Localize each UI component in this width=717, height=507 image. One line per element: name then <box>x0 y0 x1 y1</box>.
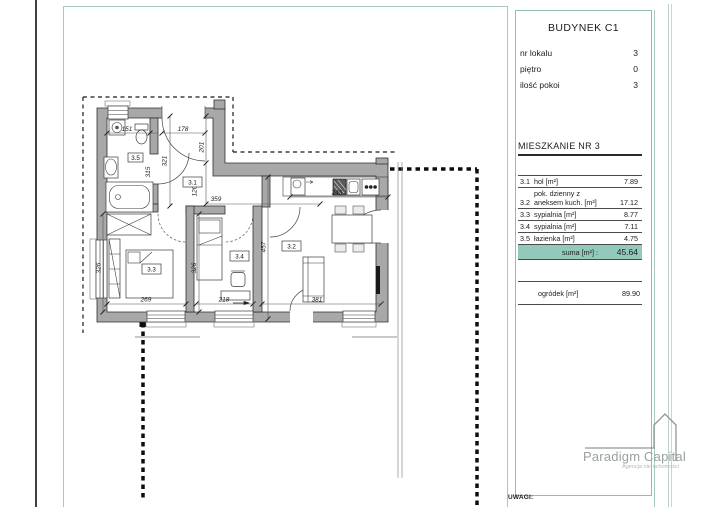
garden-door-opening <box>290 311 313 324</box>
table-row: 3.5 łazienka [m²] 4.75 <box>518 233 642 245</box>
room-label-3-1: 3.1 <box>188 180 197 187</box>
garden-label: ogródek [m²] <box>518 289 604 298</box>
window-sill <box>214 322 254 327</box>
room-name: łazienka [m²] <box>534 234 606 243</box>
window-sill <box>342 322 376 327</box>
unit-info: nr lokalu 3 piętro 0 ilość pokoi 3 <box>520 45 638 93</box>
room-label-3-4: 3.4 <box>235 254 244 261</box>
sofa-icon <box>303 257 324 302</box>
window-bath <box>108 106 128 119</box>
info-label: ilość pokoi <box>520 77 560 93</box>
window-bottom-3 <box>343 311 375 322</box>
page: { "page": { "uwagi": "UWAGI:" }, "sideba… <box>0 0 717 507</box>
room-number: 3.4 <box>518 222 534 231</box>
logo-name: Paradigm Capital <box>583 449 686 464</box>
drawing-frame-right <box>507 6 508 507</box>
company-logo: Paradigm Capital Agencja nieruchomości <box>583 408 685 474</box>
radiator <box>376 266 380 294</box>
dim-315: 315 <box>145 166 152 177</box>
total-label: suma [m²] : <box>518 248 602 257</box>
room-name: sypialnia [m²] <box>534 222 606 231</box>
chair <box>353 206 364 214</box>
drawing-frame-left <box>63 6 64 507</box>
stove-icon <box>362 179 379 195</box>
chair <box>335 206 346 214</box>
garden-area-row: ogródek [m²] 89.90 <box>518 281 642 305</box>
dim-381: 381 <box>312 297 323 304</box>
info-row-pietro: piętro 0 <box>520 61 638 77</box>
room-area-table: 3.1 hol [m²] 7.89 3.2 pok. dzienny z ane… <box>518 175 642 260</box>
room-number: 3.2 <box>518 198 534 207</box>
dim-201: 201 <box>199 141 206 153</box>
room-area: 7.89 <box>606 177 640 186</box>
uwagi-label: UWAGI: <box>508 494 533 501</box>
window-bottom-2 <box>215 311 253 322</box>
dim-326-bedroom33: 326 <box>96 262 103 273</box>
room-name: sypialnia [m²] <box>534 210 606 219</box>
room-label-3-3: 3.3 <box>147 267 156 274</box>
total-area-row: suma [m²] : 45.64 <box>518 245 642 260</box>
table-row: 3.3 sypialnia [m²] 8.77 <box>518 209 642 221</box>
chair <box>335 244 346 252</box>
wardrobe-icon <box>107 214 151 235</box>
dim-321: 321 <box>162 155 169 166</box>
bed-icon <box>197 218 222 280</box>
dim-218: 218 <box>218 297 230 304</box>
dim-178: 178 <box>178 126 189 133</box>
room-number: 3.1 <box>518 177 534 186</box>
room-area: 17.12 <box>606 198 640 207</box>
room-label-3-5: 3.5 <box>131 155 140 162</box>
bathtub-icon <box>106 182 153 212</box>
info-row-nr-lokalu: nr lokalu 3 <box>520 45 638 61</box>
room-area: 4.75 <box>606 234 640 243</box>
page-edge-line <box>35 0 37 507</box>
building-title: BUDYNEK C1 <box>516 22 651 34</box>
room-number: 3.5 <box>518 234 534 243</box>
dining-table <box>332 215 372 243</box>
room-name: pok. dzienny z aneksem kuch. [m²] <box>534 189 606 207</box>
window-sill <box>105 101 130 106</box>
logo-tagline: Agencja nieruchomości <box>622 464 679 470</box>
table-row: 3.1 hol [m²] 7.89 <box>518 175 642 188</box>
info-value: 0 <box>633 61 638 77</box>
info-value: 3 <box>633 45 638 61</box>
toilet-icon <box>135 124 148 144</box>
info-label: nr lokalu <box>520 45 552 61</box>
table-row: 3.2 pok. dzienny z aneksem kuch. [m²] 17… <box>518 188 642 209</box>
balcony-door-opening <box>375 210 389 243</box>
table-row: 3.4 sypialnia [m²] 7.11 <box>518 221 642 233</box>
info-label: piętro <box>520 61 541 77</box>
dim-269: 269 <box>140 297 152 304</box>
total-value: 45.64 <box>602 247 640 257</box>
window-bottom-1 <box>147 311 185 322</box>
apartment-heading: MIESZKANIE NR 3 <box>518 141 642 156</box>
drawing-frame-top <box>63 6 508 7</box>
room-area: 7.11 <box>606 222 640 231</box>
garden-value: 89.90 <box>604 289 642 298</box>
sink-icon <box>104 157 118 178</box>
window-sill <box>146 322 186 327</box>
room-name: hol [m²] <box>534 177 606 186</box>
room-label-3-2: 3.2 <box>287 244 296 251</box>
dim-359: 359 <box>211 196 222 203</box>
dim-245: 245 <box>331 190 343 197</box>
info-value: 3 <box>633 77 638 93</box>
chair <box>353 244 364 252</box>
room-area: 8.77 <box>606 210 640 219</box>
dim-151: 151 <box>122 126 133 133</box>
info-row-ilosc-pokoi: ilość pokoi 3 <box>520 77 638 93</box>
dim-457: 457 <box>261 241 268 252</box>
dim-326-bedroom34: 326 <box>191 262 198 273</box>
closet-icon <box>109 239 120 298</box>
chair-icon <box>231 273 245 287</box>
room-number: 3.3 <box>518 210 534 219</box>
